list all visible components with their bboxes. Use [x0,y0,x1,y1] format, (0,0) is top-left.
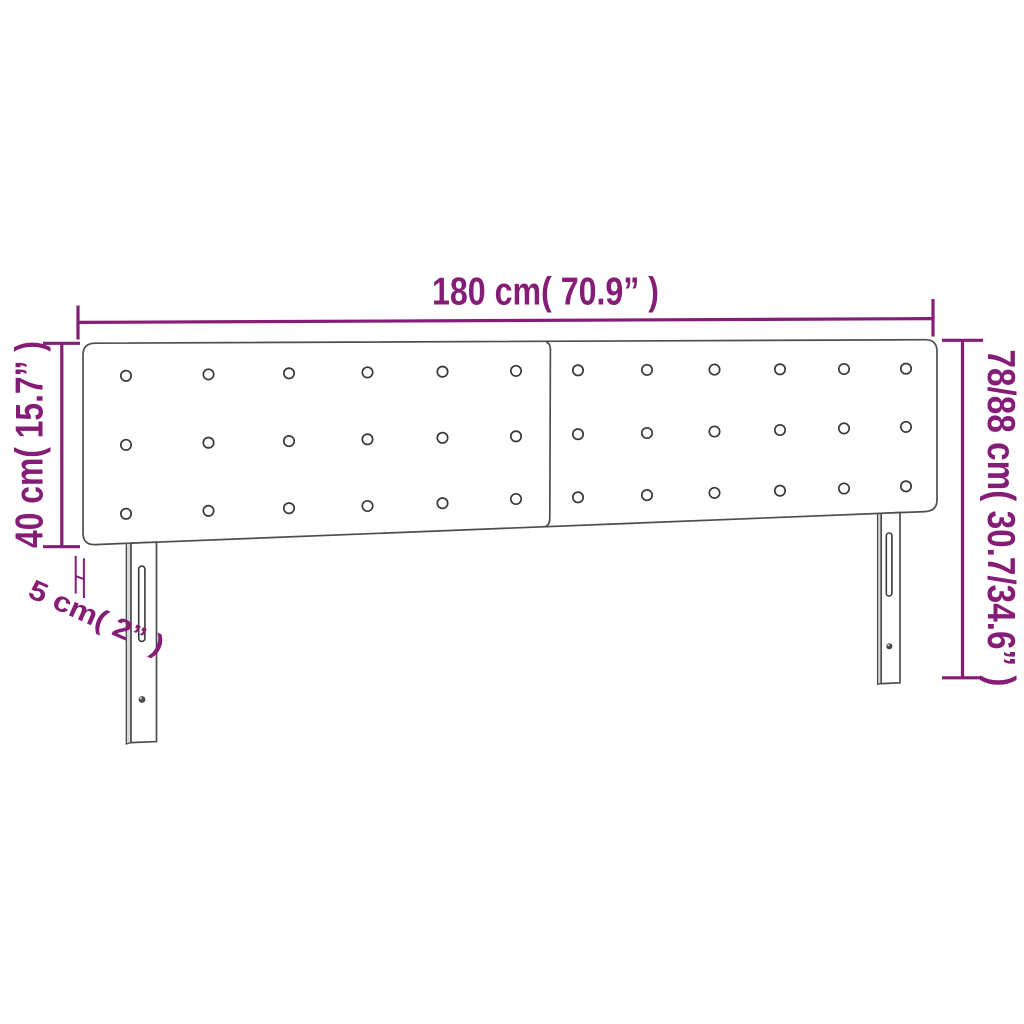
svg-text:40 cm( 15.7” ): 40 cm( 15.7” ) [9,341,52,548]
svg-text:180 cm( 70.9” ): 180 cm( 70.9” ) [432,271,659,314]
svg-text:78/88 cm( 30.7/34.6” ): 78/88 cm( 30.7/34.6” ) [979,350,1022,687]
